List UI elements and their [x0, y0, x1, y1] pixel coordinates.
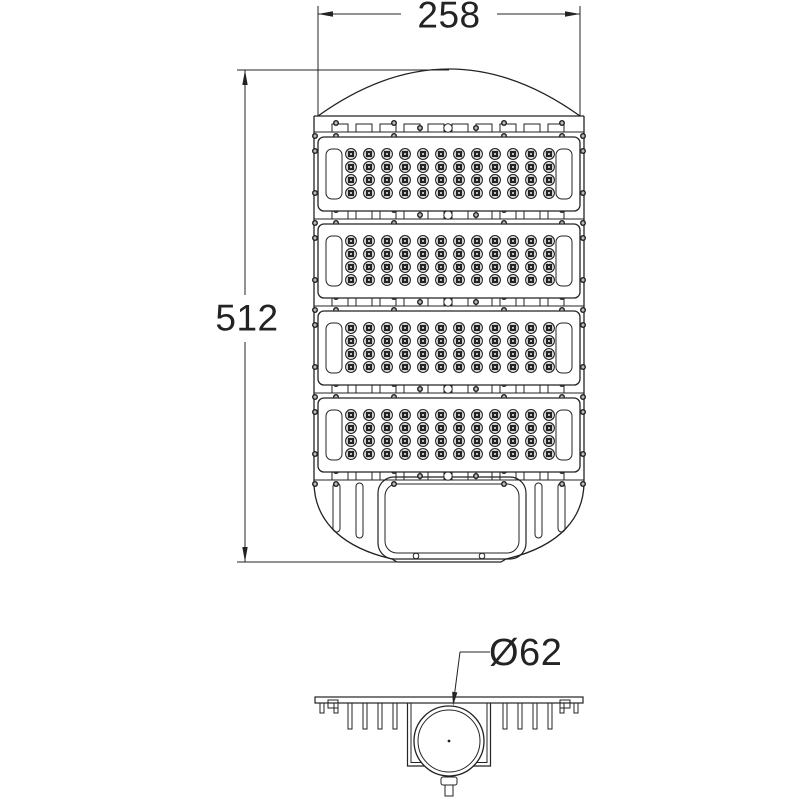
screw — [580, 277, 586, 283]
led — [508, 275, 519, 286]
led — [436, 262, 447, 273]
led-module — [312, 137, 586, 211]
vent-slot — [558, 483, 565, 532]
led — [454, 262, 465, 273]
led — [346, 449, 357, 460]
led — [544, 423, 555, 434]
strip-tab — [428, 124, 444, 132]
led — [418, 162, 429, 173]
led — [382, 336, 393, 347]
heatsink-fin — [378, 703, 382, 729]
led — [400, 323, 411, 334]
led — [346, 275, 357, 286]
led — [472, 175, 483, 186]
led — [382, 188, 393, 199]
led — [418, 436, 429, 447]
gland-stem — [445, 785, 453, 796]
led — [382, 162, 393, 173]
alignment-hole — [444, 298, 452, 306]
led — [544, 410, 555, 421]
screw — [312, 409, 318, 415]
module-frame — [318, 137, 580, 211]
led — [436, 423, 447, 434]
led — [364, 449, 375, 460]
screw — [417, 125, 423, 131]
led — [454, 410, 465, 421]
led — [364, 410, 375, 421]
heatsink-fin — [363, 703, 367, 729]
strip-tab — [356, 211, 372, 219]
led — [382, 149, 393, 160]
strip-tab — [356, 472, 372, 480]
gland-cap — [441, 777, 457, 785]
led — [526, 449, 537, 460]
alignment-hole — [444, 211, 452, 219]
screw — [312, 307, 318, 313]
led — [436, 162, 447, 173]
led — [400, 336, 411, 347]
led — [400, 262, 411, 273]
strip-tab — [356, 124, 372, 132]
led — [490, 362, 501, 373]
led — [544, 336, 555, 347]
screw — [391, 481, 397, 487]
led — [382, 262, 393, 273]
width-arrowhead-left — [318, 11, 333, 16]
strip-tab — [524, 211, 540, 219]
screw — [501, 481, 507, 487]
strip-tab — [452, 124, 468, 132]
heatsink-fin — [503, 703, 507, 729]
led — [544, 249, 555, 260]
led — [526, 149, 537, 160]
height-arrowhead-top — [242, 70, 247, 85]
led — [526, 423, 537, 434]
led — [400, 349, 411, 360]
led — [508, 423, 519, 434]
strip-tab — [452, 298, 468, 306]
led — [490, 188, 501, 199]
leader-line-slanted — [455, 652, 460, 692]
alignment-hole — [444, 124, 452, 132]
led — [418, 149, 429, 160]
led — [400, 236, 411, 247]
screw — [312, 364, 318, 370]
strip-tab — [452, 385, 468, 393]
screw — [473, 299, 479, 305]
section-view: Ø62 — [315, 632, 583, 796]
led — [382, 362, 393, 373]
screw — [580, 481, 586, 487]
led — [472, 149, 483, 160]
led — [346, 423, 357, 434]
led — [526, 436, 537, 447]
led — [508, 249, 519, 260]
led — [400, 410, 411, 421]
led — [364, 175, 375, 186]
led — [508, 410, 519, 421]
alignment-hole — [444, 472, 452, 480]
screw — [417, 212, 423, 218]
module-frame — [318, 398, 580, 472]
strip-tab — [356, 298, 372, 306]
strip-tab — [428, 472, 444, 480]
led — [418, 362, 429, 373]
led — [400, 162, 411, 173]
led-module — [312, 398, 586, 472]
led — [454, 149, 465, 160]
strip-tab — [452, 211, 468, 219]
screw — [473, 386, 479, 392]
led — [526, 236, 537, 247]
screw — [312, 481, 318, 487]
led — [346, 349, 357, 360]
screw — [333, 120, 339, 126]
led — [544, 349, 555, 360]
led — [472, 436, 483, 447]
led — [418, 249, 429, 260]
led — [508, 349, 519, 360]
mount-diameter-label: Ø62 — [489, 632, 562, 674]
led — [346, 436, 357, 447]
strip-tab — [524, 472, 540, 480]
screw — [312, 322, 318, 328]
drawing-canvas: 258 512 — [0, 0, 800, 800]
led — [526, 262, 537, 273]
screw — [580, 235, 586, 241]
screw — [559, 120, 565, 126]
led — [436, 449, 447, 460]
strip-tab — [524, 298, 540, 306]
led — [418, 236, 429, 247]
screw — [391, 120, 397, 126]
cover-screw-hole — [479, 553, 485, 559]
led — [544, 188, 555, 199]
led — [544, 175, 555, 186]
screw — [580, 307, 586, 313]
led — [382, 175, 393, 186]
led — [418, 423, 429, 434]
led — [544, 262, 555, 273]
led — [346, 162, 357, 173]
led — [346, 236, 357, 247]
dome-arc — [318, 69, 580, 116]
led — [382, 449, 393, 460]
led — [508, 336, 519, 347]
led — [436, 349, 447, 360]
led — [400, 175, 411, 186]
screw — [312, 277, 318, 283]
led — [490, 275, 501, 286]
led — [382, 436, 393, 447]
led — [526, 336, 537, 347]
screw — [559, 481, 565, 487]
screw — [333, 481, 339, 487]
led — [400, 149, 411, 160]
led — [526, 323, 537, 334]
led — [382, 323, 393, 334]
led-module — [312, 224, 586, 298]
tail-outline — [314, 482, 584, 562]
led — [346, 323, 357, 334]
led — [400, 249, 411, 260]
screw — [580, 322, 586, 328]
led — [346, 262, 357, 273]
led — [364, 262, 375, 273]
led — [436, 175, 447, 186]
led — [418, 410, 429, 421]
led — [400, 275, 411, 286]
height-arrowhead-bottom — [242, 547, 247, 562]
led — [490, 423, 501, 434]
led-module — [312, 311, 586, 385]
driver-cover-outer — [378, 477, 526, 559]
heatsink-fin — [548, 703, 552, 729]
heatsink-fin — [533, 703, 537, 729]
led — [346, 249, 357, 260]
led — [382, 410, 393, 421]
heatsink-fin — [518, 703, 522, 729]
led — [418, 188, 429, 199]
mounting-strip — [312, 120, 586, 139]
led — [490, 175, 501, 186]
led — [472, 188, 483, 199]
screw — [580, 364, 586, 370]
strip-tab — [428, 298, 444, 306]
led — [382, 423, 393, 434]
led — [472, 349, 483, 360]
plate-clip — [328, 700, 338, 708]
screw — [312, 394, 318, 400]
vent-slot — [356, 483, 363, 538]
led — [490, 162, 501, 173]
led — [346, 149, 357, 160]
led — [526, 362, 537, 373]
led — [526, 349, 537, 360]
strip-tab — [524, 124, 540, 132]
led — [454, 362, 465, 373]
led — [364, 423, 375, 434]
led — [526, 175, 537, 186]
led — [418, 323, 429, 334]
led — [436, 323, 447, 334]
led — [346, 362, 357, 373]
led — [490, 410, 501, 421]
led — [418, 336, 429, 347]
led — [544, 449, 555, 460]
led — [472, 262, 483, 273]
led — [454, 436, 465, 447]
top-view — [312, 69, 586, 562]
led — [400, 362, 411, 373]
led — [436, 188, 447, 199]
led — [544, 236, 555, 247]
led — [472, 323, 483, 334]
led — [544, 362, 555, 373]
alignment-hole — [444, 385, 452, 393]
led — [544, 149, 555, 160]
led — [364, 275, 375, 286]
led — [346, 175, 357, 186]
screw — [580, 409, 586, 415]
led — [472, 275, 483, 286]
led — [454, 423, 465, 434]
module-frame — [318, 311, 580, 385]
led — [508, 262, 519, 273]
screw — [417, 386, 423, 392]
heatsink-fin — [348, 703, 352, 729]
height-dimension-label: 512 — [215, 298, 278, 339]
led — [508, 362, 519, 373]
leader-arrowhead — [452, 692, 457, 706]
screw — [501, 120, 507, 126]
screw — [312, 148, 318, 154]
led — [526, 188, 537, 199]
led — [364, 236, 375, 247]
plate-clip — [560, 700, 570, 708]
screw — [312, 451, 318, 457]
technical-drawing: 258 512 — [0, 0, 800, 800]
screw — [580, 394, 586, 400]
led — [490, 249, 501, 260]
mount-plate — [315, 697, 583, 703]
screw — [473, 212, 479, 218]
module-frame — [318, 224, 580, 298]
led — [472, 362, 483, 373]
led — [382, 275, 393, 286]
led — [508, 436, 519, 447]
led — [364, 323, 375, 334]
heatsink-fin — [320, 703, 324, 713]
strip-tab — [428, 385, 444, 393]
screw — [312, 235, 318, 241]
led — [400, 188, 411, 199]
led — [436, 362, 447, 373]
led — [364, 149, 375, 160]
width-dimension: 258 — [318, 0, 580, 116]
led — [382, 249, 393, 260]
led — [400, 436, 411, 447]
led — [382, 236, 393, 247]
led — [418, 262, 429, 273]
led — [418, 275, 429, 286]
cover-screw-hole — [413, 553, 419, 559]
led — [418, 349, 429, 360]
led — [436, 436, 447, 447]
led — [508, 188, 519, 199]
driver-cover-inner — [385, 484, 519, 553]
led — [454, 162, 465, 173]
strip-tab — [428, 211, 444, 219]
led — [454, 275, 465, 286]
led — [490, 236, 501, 247]
led — [346, 336, 357, 347]
screw — [580, 133, 586, 139]
led — [454, 349, 465, 360]
led — [526, 275, 537, 286]
led — [436, 410, 447, 421]
led — [364, 249, 375, 260]
led — [364, 336, 375, 347]
led — [418, 175, 429, 186]
led — [490, 336, 501, 347]
led — [472, 336, 483, 347]
screw — [417, 299, 423, 305]
strip-tab — [356, 385, 372, 393]
vent-slot — [333, 483, 340, 532]
screw — [580, 220, 586, 226]
led — [544, 275, 555, 286]
width-dimension-label: 258 — [417, 0, 480, 36]
led — [436, 336, 447, 347]
width-arrowhead-right — [565, 11, 580, 16]
led — [364, 188, 375, 199]
led — [472, 236, 483, 247]
led — [454, 249, 465, 260]
screw — [417, 473, 423, 479]
led — [454, 449, 465, 460]
led — [364, 436, 375, 447]
led — [436, 275, 447, 286]
led — [490, 436, 501, 447]
strip-tab — [524, 385, 540, 393]
led — [454, 175, 465, 186]
screw — [312, 133, 318, 139]
led — [490, 323, 501, 334]
heatsink-fin — [393, 703, 397, 729]
led — [436, 149, 447, 160]
led — [436, 236, 447, 247]
screw — [312, 190, 318, 196]
screw — [473, 473, 479, 479]
led — [490, 349, 501, 360]
led — [472, 423, 483, 434]
led — [544, 162, 555, 173]
led — [472, 249, 483, 260]
led — [526, 249, 537, 260]
led — [454, 236, 465, 247]
diameter-callout: Ø62 — [452, 632, 562, 706]
led — [544, 323, 555, 334]
screw — [473, 125, 479, 131]
screw — [580, 190, 586, 196]
led — [508, 149, 519, 160]
led — [490, 262, 501, 273]
led — [364, 362, 375, 373]
pole-mount-center-mark — [448, 740, 451, 743]
led — [508, 175, 519, 186]
led — [508, 323, 519, 334]
led — [508, 449, 519, 460]
led — [400, 423, 411, 434]
led — [382, 349, 393, 360]
led — [508, 162, 519, 173]
led — [544, 436, 555, 447]
led — [454, 323, 465, 334]
led — [472, 410, 483, 421]
led — [508, 236, 519, 247]
screw — [580, 451, 586, 457]
led — [364, 349, 375, 360]
led — [400, 449, 411, 460]
led — [472, 449, 483, 460]
led — [526, 162, 537, 173]
screw — [580, 148, 586, 154]
led — [346, 188, 357, 199]
heatsink-fin — [574, 703, 578, 713]
led — [472, 162, 483, 173]
led — [454, 188, 465, 199]
